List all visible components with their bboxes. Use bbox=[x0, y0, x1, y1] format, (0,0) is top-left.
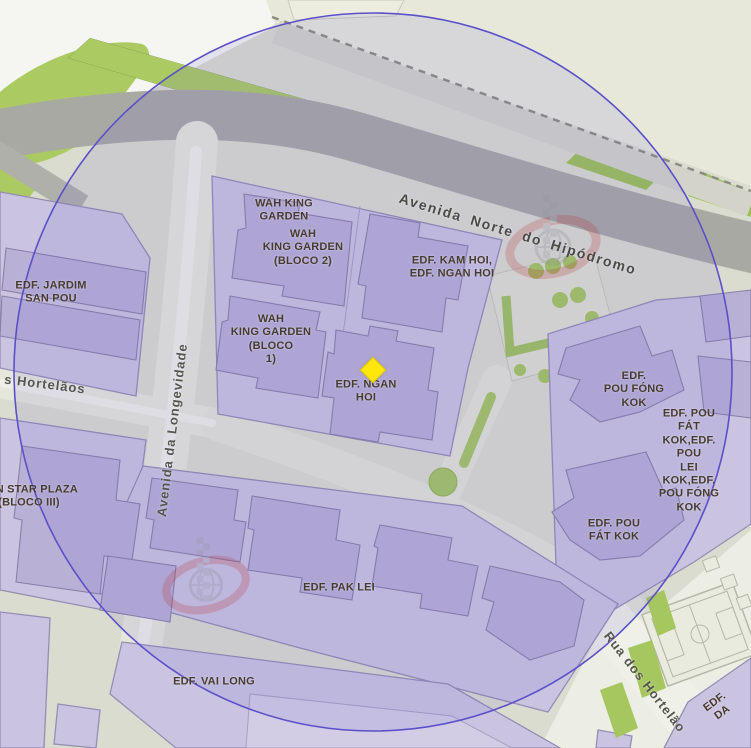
block-left-edge bbox=[0, 612, 50, 748]
map-viewport[interactable]: Avenida Norte do Hipódromo Avenida da Lo… bbox=[0, 0, 751, 748]
block-left-edge-2 bbox=[54, 704, 100, 748]
